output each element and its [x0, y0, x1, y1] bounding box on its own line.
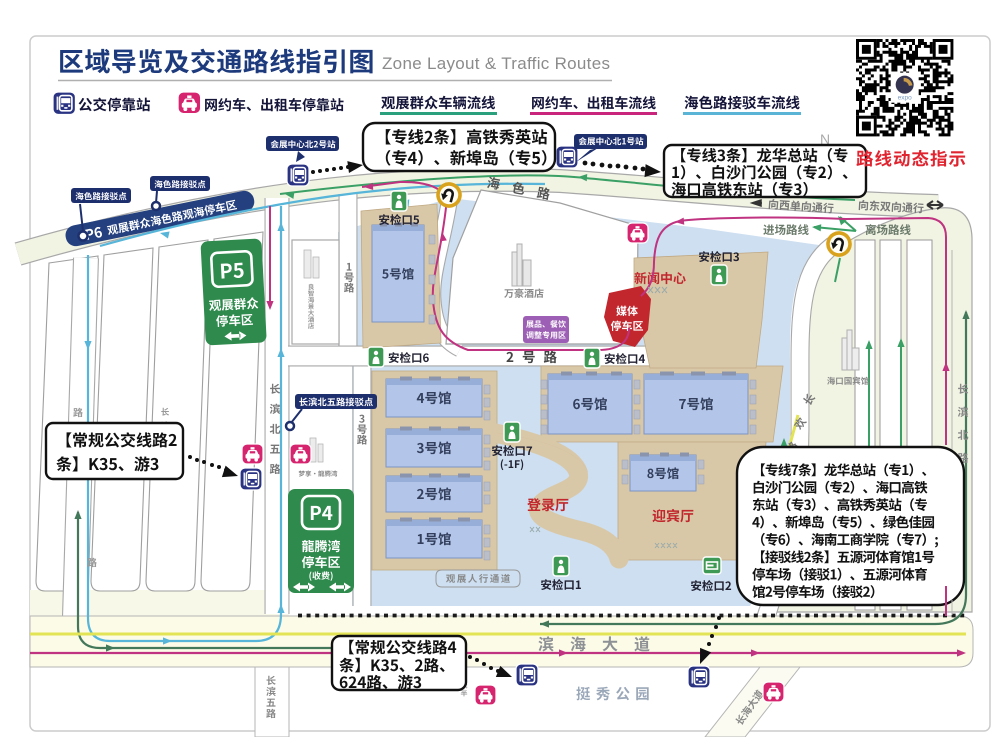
svg-text:Zone Layout & Traffic Routes: Zone Layout & Traffic Routes: [382, 54, 610, 73]
svg-text:expo: expo: [898, 95, 912, 102]
